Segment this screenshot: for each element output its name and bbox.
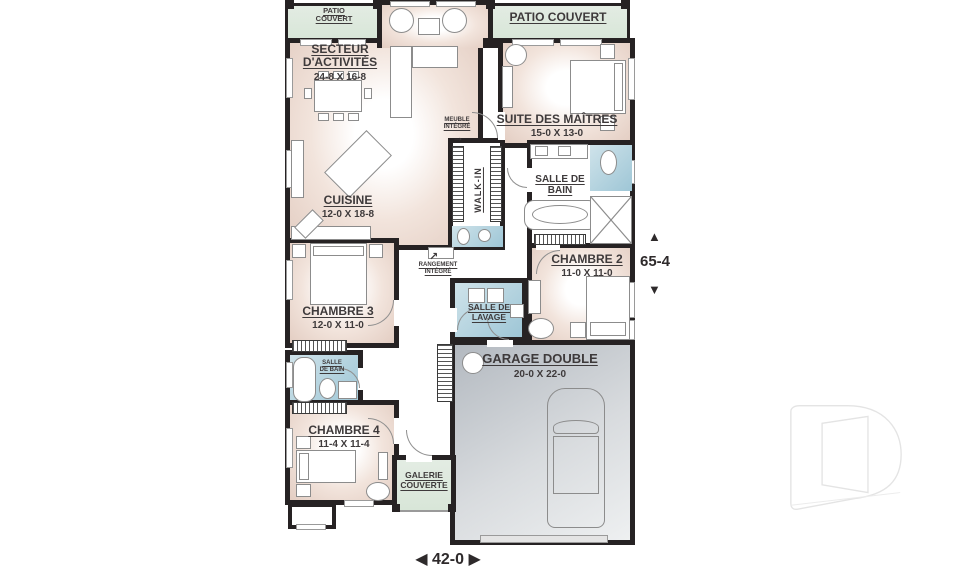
label-secteur-activites: SECTEUR D'ACTIVITÉS 24-8 X 16-8 (303, 43, 377, 83)
label-suite-des-maitres: SUITE DES MAÎTRES 15-0 X 13-0 (497, 113, 618, 140)
door-opening (394, 418, 401, 444)
window (436, 1, 476, 7)
patio-post (373, 0, 382, 9)
label-cuisine: CUISINE 12-0 X 18-8 (322, 194, 374, 221)
door-arc (507, 168, 527, 188)
garage-door (480, 535, 608, 543)
porch-post (392, 504, 400, 512)
porch-post (448, 504, 456, 512)
door-opening (487, 340, 513, 347)
label-patio-couvert-right: PATIO COUVERT (510, 11, 607, 24)
washer (468, 288, 485, 303)
car-windshield (553, 420, 599, 434)
dresser (528, 280, 541, 314)
closet-chambre-2 (534, 234, 586, 245)
pillows (590, 322, 626, 336)
width-arrow-left-icon: ◀ (415, 551, 427, 568)
depth-arrow-up-icon: ▲ (648, 229, 661, 244)
window (286, 428, 293, 468)
depth-dimension: 65-4 (640, 253, 670, 270)
nightstand (570, 322, 586, 338)
annotation-arrow-up-right: ↗ (429, 250, 438, 263)
door-opening (505, 218, 511, 240)
front-door-arc (406, 430, 432, 456)
side-table (418, 18, 440, 35)
label-garage-double: GARAGE DOUBLE 20-0 X 22-0 (482, 352, 598, 380)
dresser (378, 452, 388, 480)
nightstand (296, 484, 311, 497)
patio-post (285, 0, 294, 9)
label-salle-de-bain-2: SALLE DE BAIN (320, 360, 345, 373)
window (390, 1, 430, 7)
closet-chambre-4 (292, 402, 347, 414)
chair (364, 88, 372, 99)
garage-column (462, 352, 484, 374)
armchair (442, 8, 467, 33)
sink (558, 146, 571, 156)
window (296, 524, 326, 530)
sofa (412, 46, 458, 68)
window (560, 39, 602, 46)
chair (333, 113, 344, 121)
walk-in-rod (490, 146, 502, 222)
door-arc (472, 112, 498, 138)
width-dimension-group: ◀ 42-0 ▶ (415, 549, 481, 569)
sink (478, 229, 491, 242)
pillows (614, 63, 623, 111)
label-patio-couvert-left: PATIO COUVERT (316, 7, 353, 24)
label-rangement-integre: RANGEMENT INTÉGRÉ (419, 262, 458, 275)
window (344, 500, 374, 507)
nightstand (369, 244, 383, 258)
label-chambre-2: CHAMBRE 2 11-0 X 11-0 (551, 253, 622, 280)
label-walk-in: WALK-IN (473, 167, 483, 213)
sofa (390, 46, 412, 118)
toilet (600, 150, 617, 175)
dryer (487, 288, 504, 303)
armchair (528, 318, 554, 339)
width-dimension: 42-0 (432, 551, 464, 568)
nightstand (600, 44, 615, 59)
wall-segment (483, 38, 503, 48)
drummond-logo (785, 394, 907, 516)
kitchen-counter (291, 140, 304, 198)
patio-post (486, 0, 495, 9)
pillows (299, 453, 309, 480)
door-opening (394, 300, 401, 326)
toilet (319, 378, 336, 399)
toilet (457, 228, 470, 245)
sink (535, 146, 548, 156)
bathtub-basin (532, 205, 588, 224)
window (286, 58, 293, 98)
chair (304, 88, 312, 99)
chair (348, 113, 359, 121)
front-door-opening (406, 455, 432, 462)
closet-chambre-3 (292, 340, 347, 352)
vanity (338, 381, 357, 399)
window (286, 362, 293, 388)
armchair (366, 482, 390, 501)
window (286, 260, 293, 300)
floor-plan-canvas: PATIO COUVERT PATIO COUVERT SECTEUR D'AC… (0, 0, 960, 569)
walk-in-rod (452, 146, 464, 222)
label-salle-de-bain: SALLE DE BAIN (535, 174, 584, 196)
dresser (502, 66, 513, 108)
label-salle-de-lavage: SALLE DE LAVAGE (468, 303, 510, 322)
stairs (437, 344, 453, 402)
laundry-sink (510, 304, 524, 318)
armchair (505, 44, 527, 66)
armchair (389, 8, 414, 33)
car-roof (553, 436, 599, 494)
chair (318, 113, 329, 121)
nightstand (292, 244, 306, 258)
annotation-arrow-right: → (452, 130, 464, 144)
label-galerie-couverte: GALERIE COUVERTE (400, 471, 447, 490)
window (628, 58, 635, 100)
shower-cross-lines (590, 196, 632, 244)
label-chambre-3: CHAMBRE 3 12-0 X 11-0 (302, 305, 373, 332)
door-opening (527, 168, 533, 192)
dining-table (314, 80, 362, 112)
label-chambre-4: CHAMBRE 4 11-4 X 11-4 (308, 424, 379, 451)
depth-arrow-down-icon: ▼ (648, 282, 661, 297)
patio-post (621, 0, 630, 9)
label-meuble-integre: MEUBLE INTÉGRÉ (444, 117, 471, 130)
door-opening (450, 308, 457, 332)
pillows (313, 246, 364, 256)
bathtub (293, 357, 316, 402)
width-arrow-right-icon: ▶ (468, 551, 480, 568)
